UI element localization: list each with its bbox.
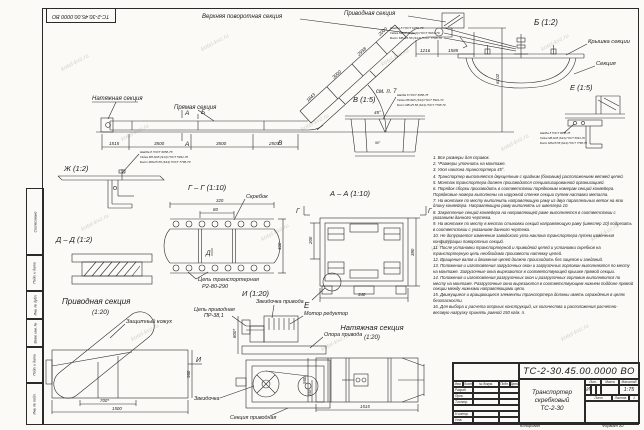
dim-bottom-4: 2507	[268, 141, 280, 146]
gg-dimensions: 320 80 400	[170, 198, 286, 273]
dim-gg-320: 320	[216, 198, 224, 203]
section-mark-g-left: Г	[296, 208, 300, 215]
view-title-dd: Д – Д (1:2)	[55, 235, 93, 244]
note-item: 13. Положения и изготовления загрузочных…	[433, 263, 634, 274]
tb-doc-number: ТС-2-30.45.00.0000 ВО	[519, 363, 639, 379]
margin-label: Инв. № дубл.	[33, 295, 37, 316]
note-item: 9. На монтаже по месту в местах стыковки…	[433, 221, 634, 232]
section-mark-g-right: Г	[428, 208, 432, 215]
note-item: 2. *Размеры уточнить на монтаже.	[433, 161, 634, 167]
margin-box-soglasovano: Согласовано	[26, 188, 44, 256]
note-item: 4. Транспортер выполняется двухцепным с …	[433, 174, 634, 180]
note-item: 16. Для выбора и расчета опорных констру…	[433, 304, 634, 315]
tb-empty	[473, 417, 499, 423]
note-item: 8. Закрепление секций конвейера на напра…	[433, 210, 634, 221]
aa-box-drawing	[320, 218, 408, 294]
tb-row-utv: Утв.	[453, 417, 473, 423]
dim-i-800: 800*	[232, 329, 237, 338]
dim-gg-400: 400	[277, 242, 282, 250]
dim-incline-4: 2000	[377, 26, 389, 38]
label-protective-casing: Защитный кожух	[126, 318, 172, 325]
view-title-i: И (1:20)	[242, 289, 270, 298]
tension-section-view: Натяжная секция (1:20) 1515 560 258	[302, 318, 442, 422]
view-title-b: Б (1:2)	[534, 18, 558, 27]
fastener-line: Шайба 8 ГОСТ 6958-78	[140, 150, 173, 154]
fastener-line: Болт М8х25.58 (S13) ГОСТ 7798-70	[390, 36, 442, 40]
section-mark-a-top: А	[184, 110, 189, 117]
section-marks: А А Б В	[182, 109, 283, 148]
drive-section-view: Приводная секция (1:20) Защитный кожух И…	[40, 292, 215, 422]
margin-label: Подп. и дата	[33, 354, 37, 375]
dd-drawing	[72, 254, 152, 284]
label-tension-section: Натяжная секция	[92, 96, 143, 102]
format-label: Формат А2	[602, 423, 624, 428]
view-title-drive-section: Приводная секция	[62, 297, 131, 306]
label-drive-chain-type: ПР-38,1	[204, 313, 224, 319]
note-item: 1. Все размеры для справок.	[433, 155, 634, 161]
label-sprocket: Звездочка	[194, 396, 219, 402]
tb-name-line3: ТС-2-30	[540, 405, 563, 413]
drive-section-dimensions: 700* 1500 560	[52, 350, 192, 414]
note-item: 12. Вращение валов и движение цепей долж…	[433, 257, 634, 263]
title-block: Изм. Лист № докум. Подп. Дата Разраб. Пр…	[452, 362, 640, 424]
view-title-v: В (1:5)	[353, 95, 376, 104]
technical-notes: 1. Все размеры для справок. 2. *Размеры …	[433, 155, 634, 316]
gg-labels: Скребок Д Цепь транспортерная Р2-80-290	[188, 194, 268, 290]
section-zh-drawing	[58, 169, 164, 208]
label-upper-turn-section: Верхняя поворотная секция	[202, 14, 283, 20]
fastener-callout-zh: Шайба 8 ГОСТ 6958-78 Гайка М8-6Н5 (S13) …	[122, 150, 191, 173]
margin-label: Взам. инв. №	[33, 323, 37, 344]
label-section-cover: Крышка секции	[588, 39, 631, 45]
fastener-line: Гайка М8-6Н5 (S13) ГОСТ 5931-70	[540, 136, 585, 140]
fastener-line: Болт М8х25.58 (S13) ГОСТ 7798-70	[140, 160, 191, 164]
label-section: Секция	[596, 61, 616, 67]
view-title-tension-section: Натяжная секция	[340, 323, 403, 332]
dim-aa-380: 380	[410, 248, 415, 256]
view-scale-tension-section: (1:20)	[364, 335, 380, 341]
fastener-line: Шайба 8 ГОСТ 6958-78	[397, 93, 429, 97]
dim-v-angle: 90°	[375, 141, 381, 145]
section-view-dd: Д – Д (1:2)	[48, 228, 168, 294]
fastener-line: Гайка М8-6Н5 (S13) ГОСТ 5931-70	[390, 31, 440, 35]
i-dimensions: 800*	[232, 316, 238, 354]
dim-gg-80: 80	[213, 207, 218, 212]
tb-mass-value	[601, 385, 619, 395]
i-labels-bottom: Звездочка Секция приводная	[194, 386, 288, 421]
margin-label: Инв. № подл.	[33, 393, 37, 414]
dim-drive-1500: 1500	[112, 406, 122, 411]
view-scale-drive-section: (1:20)	[92, 309, 109, 316]
dim-tension-560: 560	[302, 376, 307, 384]
gg-chain-drawing	[164, 219, 280, 273]
tb-name-line1: Транспортер	[532, 389, 572, 397]
section-b-labels: Крышка секции Секция	[566, 39, 631, 74]
dim-tension-1515: 1515	[360, 404, 370, 409]
note-item: 11. После установки транспортерной и при…	[433, 245, 634, 256]
note-item: 6. Порядок сборки производить в соответс…	[433, 186, 634, 197]
label-straight-section: Прямая секция	[174, 105, 217, 111]
margin-label: Согласовано	[33, 212, 37, 233]
dim-drive-700: 700*	[100, 398, 109, 403]
fastener-line: Шайба 8 ГОСТ 6958-78	[390, 26, 424, 30]
fastener-callout-e: Шайба 8 ГОСТ 6958-78 Гайка М8-6Н5 (S13) …	[540, 124, 587, 145]
tension-section-drawing	[316, 358, 424, 402]
note-item: 14. Положения и изготовления разгрузочны…	[433, 275, 634, 292]
note-item: 15. Движущиеся и вращающиеся элементы тр…	[433, 292, 634, 303]
copied-label: Копировал	[520, 423, 540, 428]
label-scraper: Скребок	[246, 194, 268, 200]
margin-label: Подп. и дата	[33, 262, 37, 283]
drawing-sheet: kotel-kvz.ru kotel-kvz.ru kotel-kvz.ru k…	[0, 0, 644, 430]
section-mark-d: Д	[205, 250, 211, 257]
label-drive-section-part: Секция приводная	[230, 415, 276, 421]
label-motor-reducer: Мотор редуктор	[304, 311, 348, 317]
view-title-gg: Г – Г (1:10)	[188, 183, 227, 192]
tb-change-rows	[453, 363, 519, 381]
fastener-line: Болт М8х25.58 (S13) ГОСТ 7798-70	[397, 103, 446, 107]
tb-scale-value: 1:75	[619, 385, 639, 395]
note-item: 3. Угол наклона транспортера 45°.	[433, 167, 634, 173]
fastener-callout-b: Шайба 8 ГОСТ 6958-78 Гайка М8-6Н5 (S13) …	[390, 26, 516, 51]
fastener-line: Гайка М8-6Н5 (S13) ГОСТ 5931-70	[397, 98, 444, 102]
fastener-line: Гайка М8-6Н5 (S13) ГОСТ 5931-70	[140, 155, 188, 159]
dim-tension-258: 258	[308, 389, 312, 397]
view-title-aa: А – А (1:10)	[329, 189, 371, 198]
tb-name-line2: скребковый	[535, 397, 570, 405]
tb-empty	[499, 417, 519, 423]
fastener-line: Болт М8х25.58 (S13) ГОСТ 7798-70	[540, 141, 587, 145]
fastener-line: Шайба 8 ГОСТ 6958-78	[540, 131, 571, 135]
section-v-drawing: 90°	[345, 116, 425, 156]
tb-drawing-name: Транспортер скребковый ТС-2-30	[519, 379, 585, 423]
fastener-callout-v: Шайба 8 ГОСТ 6958-78 Гайка М8-6Н5 (S13) …	[383, 93, 446, 119]
note-item: 7. На монтаже по месту выполнить направл…	[433, 198, 634, 209]
note-item: 5. Монтаж транспортера должен производит…	[433, 180, 634, 186]
tension-section-dimensions: 1515 560 258	[302, 358, 418, 412]
label-conveyor-chain: Цепь транспортерная	[198, 277, 259, 283]
dim-aa-200: 200	[308, 236, 313, 245]
margin-box-podp-data-1: Подп. и дата	[26, 254, 44, 292]
label-drive-sprocket: Звездочка привода	[256, 299, 304, 305]
aa-section-marks: Г Г	[296, 206, 432, 215]
note-item: 10. Не допускается изменение заводского …	[433, 233, 634, 244]
view-title-zh: Ж (1:2)	[63, 164, 89, 173]
view-title-e: Е (1:5)	[570, 83, 593, 92]
tb-company-cell	[585, 401, 639, 423]
detail-view-e: Е (1:5) Шайба 8 ГОСТ 6958-78 Гайка М8-6Н…	[540, 76, 640, 166]
